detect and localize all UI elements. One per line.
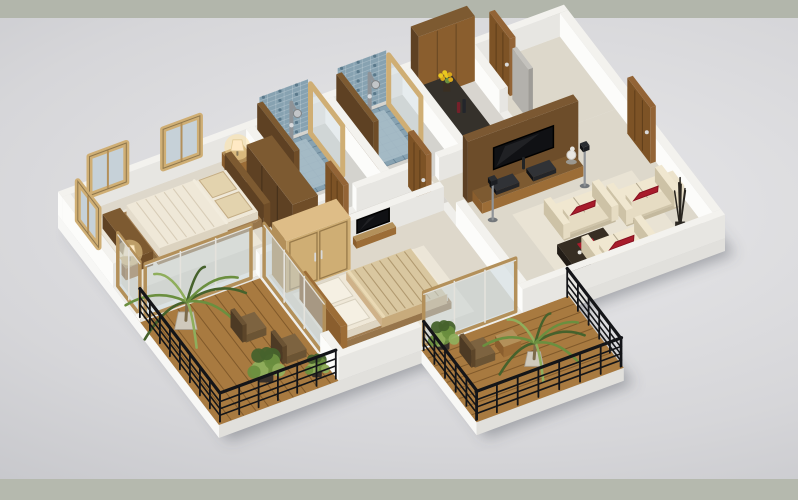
apartment-model: [58, 5, 735, 441]
floorplan-3d-render: [0, 0, 798, 500]
screenshot-frame: [0, 0, 798, 500]
